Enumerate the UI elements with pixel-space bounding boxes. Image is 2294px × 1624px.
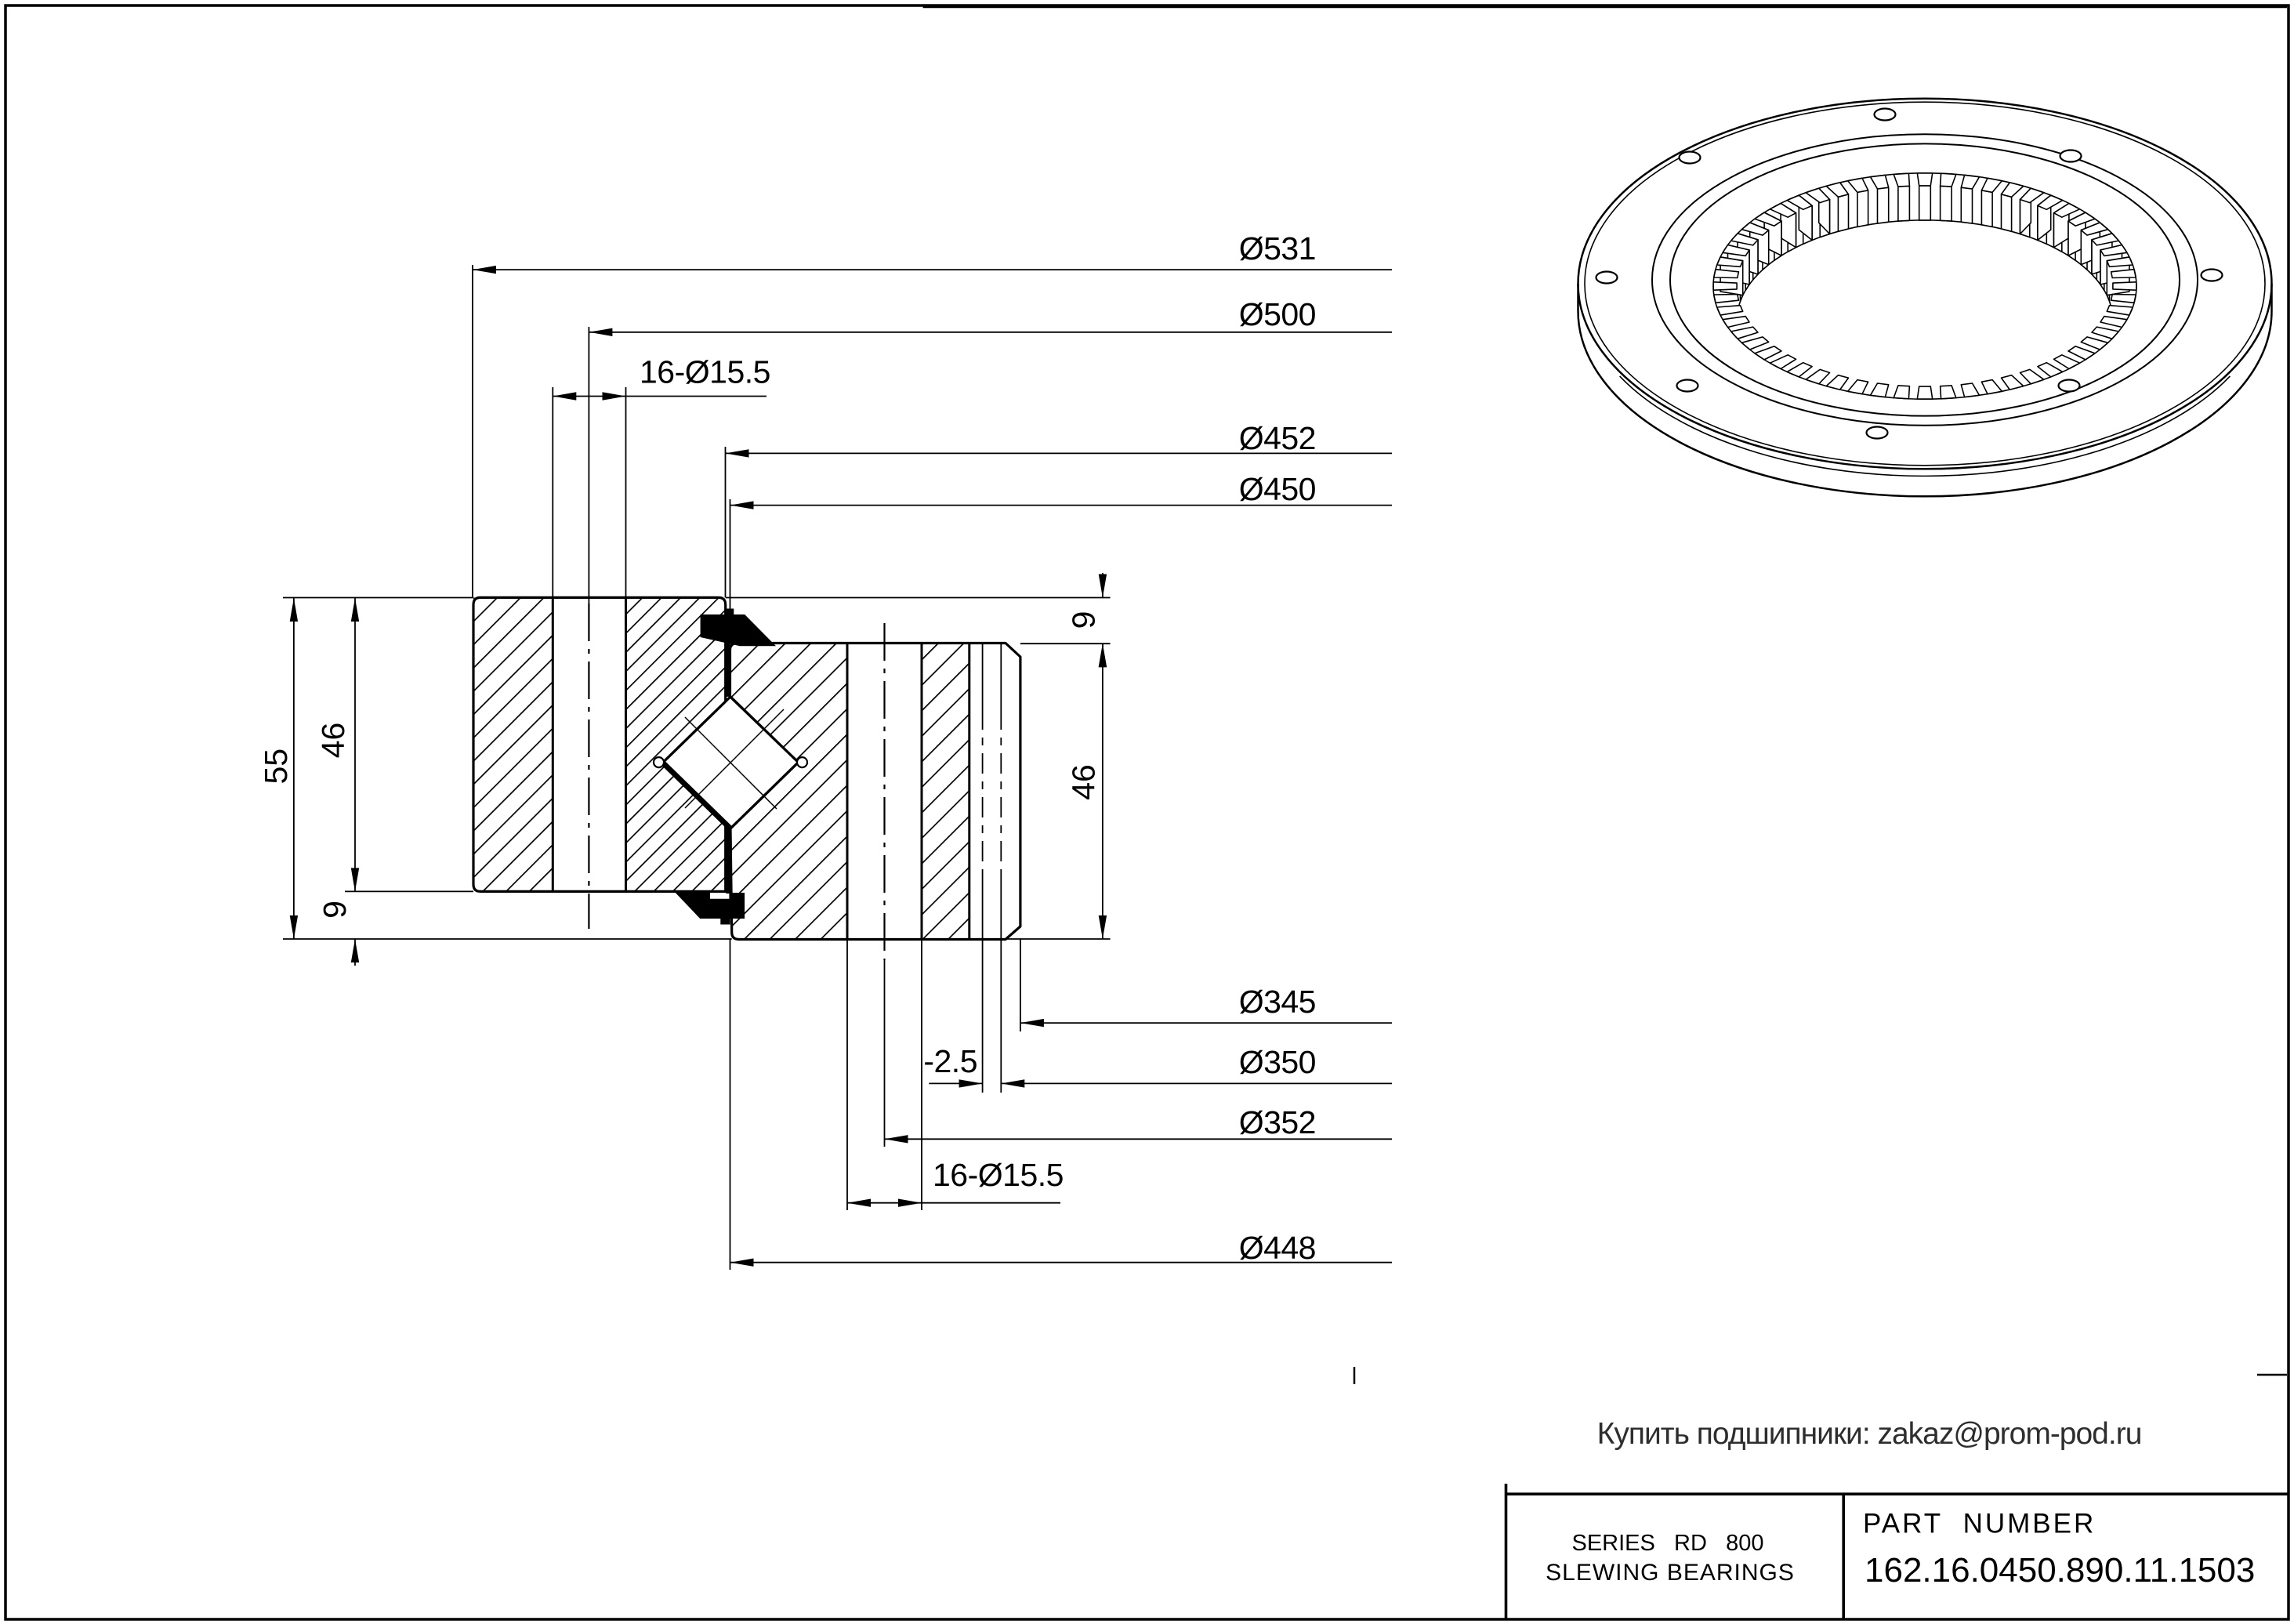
svg-text:9: 9	[1066, 611, 1102, 629]
svg-text:Ø352: Ø352	[1239, 1104, 1316, 1140]
svg-text:Купить подшипники: zakaz@prom-: Купить подшипники: zakaz@prom-pod.ru	[1597, 1417, 2142, 1451]
svg-text:16-Ø15.5: 16-Ø15.5	[933, 1157, 1064, 1193]
svg-text:Ø350: Ø350	[1239, 1044, 1316, 1080]
svg-text:Ø450: Ø450	[1239, 471, 1316, 507]
svg-text:SERIES RD 800: SERIES RD 800	[1572, 1531, 1764, 1556]
svg-text:Ø452: Ø452	[1239, 420, 1316, 456]
svg-text:55: 55	[258, 749, 294, 785]
svg-text:PART NUMBER: PART NUMBER	[1863, 1508, 2096, 1539]
svg-text:SLEWING BEARINGS: SLEWING BEARINGS	[1546, 1560, 1795, 1586]
svg-text:46: 46	[1066, 764, 1102, 800]
svg-text:Ø500: Ø500	[1239, 296, 1316, 332]
svg-text:9: 9	[317, 901, 353, 919]
svg-text:16-Ø15.5: 16-Ø15.5	[640, 353, 770, 390]
svg-text:Ø531: Ø531	[1239, 230, 1316, 266]
svg-text:Ø448: Ø448	[1239, 1230, 1316, 1266]
svg-text:46: 46	[315, 723, 351, 759]
svg-text:-2.5: -2.5	[923, 1043, 977, 1079]
svg-text:Ø345: Ø345	[1239, 984, 1316, 1020]
svg-text:162.16.0450.890.11.1503: 162.16.0450.890.11.1503	[1865, 1551, 2255, 1590]
